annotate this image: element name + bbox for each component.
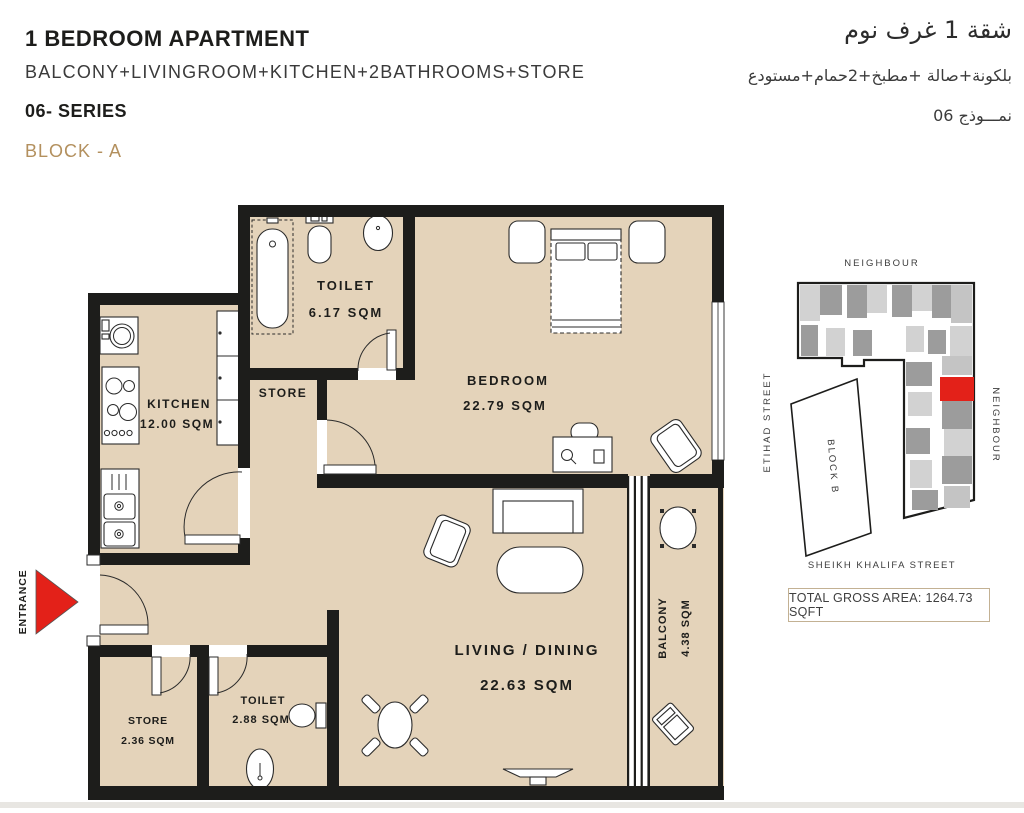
entrance-arrow-icon xyxy=(36,570,78,634)
page-subtitle-arabic: بلكونة+صالة +مطبخ+2حمام+مستودع xyxy=(748,66,1012,85)
area-kitchen: 12.00 SQM xyxy=(140,417,214,431)
series-label-arabic: نمـــوذج 06 xyxy=(933,106,1012,125)
stove xyxy=(102,367,139,444)
label-balcony: BALCONY xyxy=(657,597,669,658)
total-area-label: TOTAL GROSS AREA: 1264.73 SQFT xyxy=(789,591,989,619)
area-living: 22.63 SQM xyxy=(480,677,574,694)
series-label: 06- SERIES xyxy=(25,101,127,122)
etihad-street-label: ETIHAD STREET xyxy=(762,372,773,473)
block-b-building: BLOCK B xyxy=(791,379,871,556)
neighbour-right-label: NEIGHBOUR xyxy=(990,387,1001,463)
label-toilet-lower: TOILET xyxy=(241,695,286,707)
area-store-lower: 2.36 SQM xyxy=(121,735,175,747)
label-store-upper: STORE xyxy=(259,386,308,400)
highlighted-unit xyxy=(940,377,974,401)
entrance-marker: ENTRANCE xyxy=(17,570,78,635)
total-area-box: TOTAL GROSS AREA: 1264.73 SQFT xyxy=(788,588,990,622)
nightstand-left xyxy=(509,221,545,263)
page-subtitle: BALCONY+LIVINGROOM+KITCHEN+2BATHROOMS+ST… xyxy=(25,62,585,83)
sink-lower xyxy=(247,749,274,789)
page-title-arabic: شقة 1 غرف نوم xyxy=(844,16,1012,44)
area-bedroom: 22.79 SQM xyxy=(463,398,547,413)
balcony-table xyxy=(660,507,696,549)
area-toilet-lower: 2.88 SQM xyxy=(232,714,290,726)
coffee-table xyxy=(497,547,583,593)
site-plan: NEIGHBOUR ETIHAD STREET NEIGHBOUR SHEIKH… xyxy=(752,250,1024,584)
label-living: LIVING / DINING xyxy=(454,642,599,659)
entrance-label: ENTRANCE xyxy=(17,570,29,635)
bedroom-window xyxy=(712,302,724,460)
floor-plan: TOILET 6.17 SQM STORE KITCHEN 12.00 SQM … xyxy=(0,196,745,808)
sofa xyxy=(493,489,583,533)
area-balcony: 4.38 SQM xyxy=(680,599,692,657)
label-toilet-main: TOILET xyxy=(317,278,375,293)
kitchen-sink xyxy=(101,469,139,548)
area-toilet-main: 6.17 SQM xyxy=(309,305,384,320)
sheikh-khalifa-street-label: SHEIKH KHALIFA STREET xyxy=(808,560,956,571)
page: 1 BEDROOM APARTMENT BALCONY+LIVINGROOM+K… xyxy=(0,0,1024,808)
page-bottom-strip xyxy=(0,802,1024,808)
toilet-wc-main xyxy=(306,213,333,263)
label-kitchen: KITCHEN xyxy=(147,397,211,411)
bed xyxy=(551,229,621,333)
balcony-sliding-door xyxy=(627,476,650,786)
block-label: BLOCK - A xyxy=(25,141,122,162)
label-store-lower: STORE xyxy=(128,715,168,727)
toilet-wc-lower xyxy=(289,703,326,728)
nightstand-right xyxy=(629,221,665,263)
page-title: 1 BEDROOM APARTMENT xyxy=(25,26,310,52)
washing-machine xyxy=(100,317,138,354)
neighbour-top-label: NEIGHBOUR xyxy=(844,258,920,269)
label-bedroom: BEDROOM xyxy=(467,373,549,388)
